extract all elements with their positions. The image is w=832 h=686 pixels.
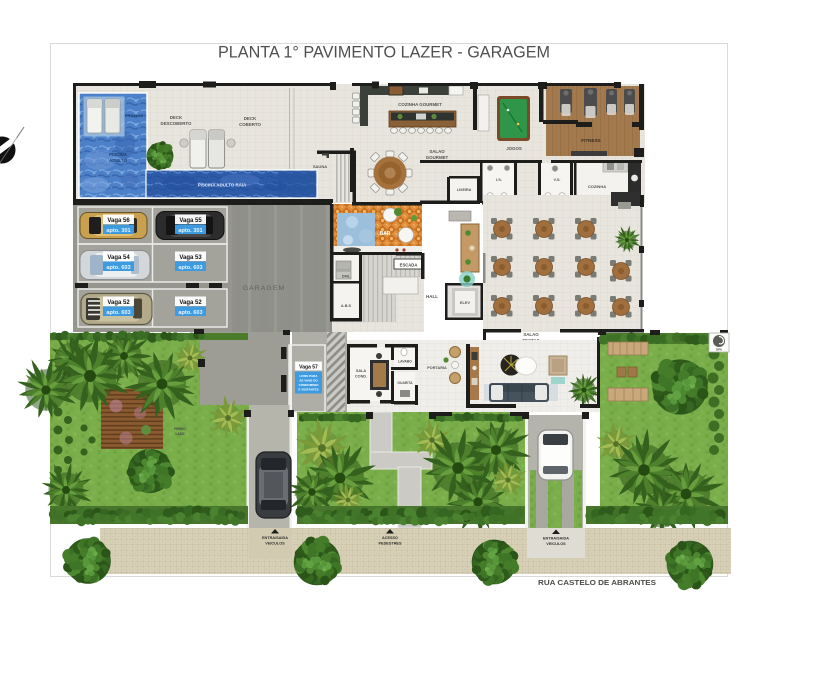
svg-text:SALAO: SALAO [523, 332, 539, 337]
svg-text:CONDOMINIO: CONDOMINIO [299, 383, 319, 387]
svg-text:Vaga 52: Vaga 52 [107, 300, 130, 306]
svg-text:ELEV: ELEV [460, 300, 471, 305]
svg-text:PISCINA: PISCINA [109, 152, 128, 157]
svg-text:PRAINHA: PRAINHA [125, 113, 143, 118]
svg-text:LIXEIRA: LIXEIRA [457, 188, 472, 192]
svg-text:SALAO: SALAO [429, 149, 445, 154]
svg-text:FITNESS: FITNESS [581, 138, 600, 143]
svg-text:HALL: HALL [426, 294, 438, 299]
svg-text:PISCINA ADULTO RAIA: PISCINA ADULTO RAIA [198, 183, 247, 188]
svg-text:Vaga 52: Vaga 52 [179, 300, 202, 306]
svg-text:ENTRA/SAIDA: ENTRA/SAIDA [543, 537, 569, 541]
svg-text:VEICULOS: VEICULOS [265, 542, 285, 546]
svg-text:COZINHA: COZINHA [588, 184, 606, 189]
svg-text:apto. 603: apto. 603 [178, 265, 202, 271]
svg-text:I.S.: I.S. [496, 177, 502, 182]
svg-text:DML: DML [342, 275, 351, 279]
svg-text:PEDESTRES: PEDESTRES [379, 542, 402, 546]
svg-text:SPA: SPA [716, 348, 723, 352]
svg-text:PORTARIA: PORTARIA [427, 366, 447, 370]
svg-text:AS VANS DO: AS VANS DO [299, 379, 318, 383]
svg-text:Vaga 54: Vaga 54 [107, 255, 130, 261]
svg-text:GUARITA: GUARITA [397, 381, 413, 385]
svg-text:JOGOS: JOGOS [506, 146, 522, 151]
svg-text:LAVABO: LAVABO [398, 360, 412, 364]
svg-text:PERGO: PERGO [174, 427, 186, 431]
svg-text:ENTRA/SAIDA: ENTRA/SAIDA [262, 536, 288, 540]
svg-text:apto. 603: apto. 603 [106, 265, 130, 271]
svg-text:VEICULOS: VEICULOS [546, 542, 566, 546]
svg-text:GARAGEM: GARAGEM [243, 285, 285, 292]
svg-text:Vaga 56: Vaga 56 [107, 218, 130, 224]
svg-text:COND.: COND. [355, 375, 367, 379]
svg-text:apto. 603: apto. 603 [106, 310, 130, 316]
svg-text:Vaga 55: Vaga 55 [179, 218, 202, 224]
svg-text:Vaga 57: Vaga 57 [299, 365, 318, 371]
svg-text:E VISITANTES: E VISITANTES [298, 388, 318, 392]
svg-text:DESCOBERTO: DESCOBERTO [161, 121, 192, 126]
svg-text:A.B.S: A.B.S [341, 304, 352, 308]
svg-text:RUA CASTELO DE ABRANTES: RUA CASTELO DE ABRANTES [538, 578, 656, 587]
svg-text:Vaga 53: Vaga 53 [179, 255, 202, 261]
svg-text:ADULTO: ADULTO [109, 158, 127, 163]
svg-text:V.S.: V.S. [554, 177, 561, 182]
svg-text:ACESSO: ACESSO [382, 536, 398, 540]
svg-text:DECK: DECK [170, 115, 183, 120]
svg-text:ESCADA: ESCADA [400, 263, 418, 268]
svg-text:apto. 301: apto. 301 [106, 228, 130, 234]
svg-text:PLANTA 1° PAVIMENTO LAZER - GA: PLANTA 1° PAVIMENTO LAZER - GARAGEM [218, 43, 550, 62]
svg-text:SALA: SALA [356, 369, 367, 373]
svg-text:apto. 301: apto. 301 [178, 228, 202, 234]
svg-text:COBERTO: COBERTO [239, 122, 261, 127]
svg-text:COZINHA GOURMET: COZINHA GOURMET [398, 102, 442, 107]
svg-text:apto. 603: apto. 603 [178, 310, 202, 316]
svg-text:DECK: DECK [244, 116, 257, 121]
svg-text:BAR: BAR [380, 231, 391, 237]
svg-text:LIVRE PARA: LIVRE PARA [300, 374, 319, 378]
svg-text:LADO: LADO [175, 432, 185, 436]
svg-text:SAUNA: SAUNA [313, 164, 327, 169]
svg-text:GOURMET: GOURMET [426, 155, 449, 160]
